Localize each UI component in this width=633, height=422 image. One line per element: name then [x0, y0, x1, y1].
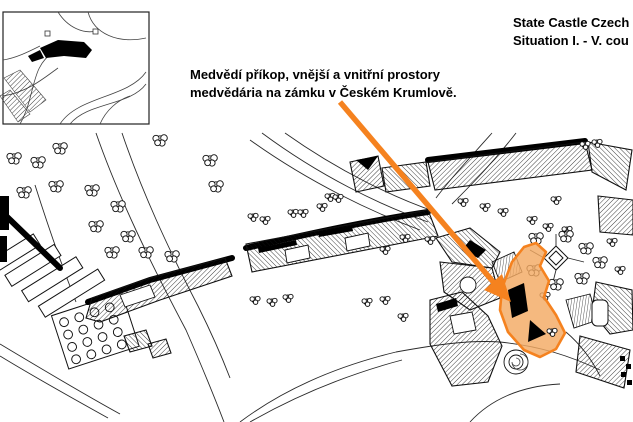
- bear-moat-annotation: Medvědí příkop, vnější a vnitřní prostor…: [190, 66, 457, 102]
- page-title: State Castle Czech Situation I. - V. cou: [513, 14, 629, 50]
- annotation-line-2: medvědária na zámku v Českém Krumlově.: [190, 84, 457, 102]
- castle-site-plan-map: [0, 0, 633, 422]
- annotation-line-1: Medvědí příkop, vnější a vnitřní prostor…: [190, 66, 457, 84]
- title-line-2: Situation I. - V. cou: [513, 32, 629, 50]
- annotation-arrow-icon: [340, 102, 511, 302]
- title-line-1: State Castle Czech: [513, 14, 629, 32]
- spiral-tower: [504, 350, 528, 374]
- screenshot-root: { "header": { "title_line1": "State Cast…: [0, 0, 633, 422]
- inset-overview-map: [0, 12, 149, 124]
